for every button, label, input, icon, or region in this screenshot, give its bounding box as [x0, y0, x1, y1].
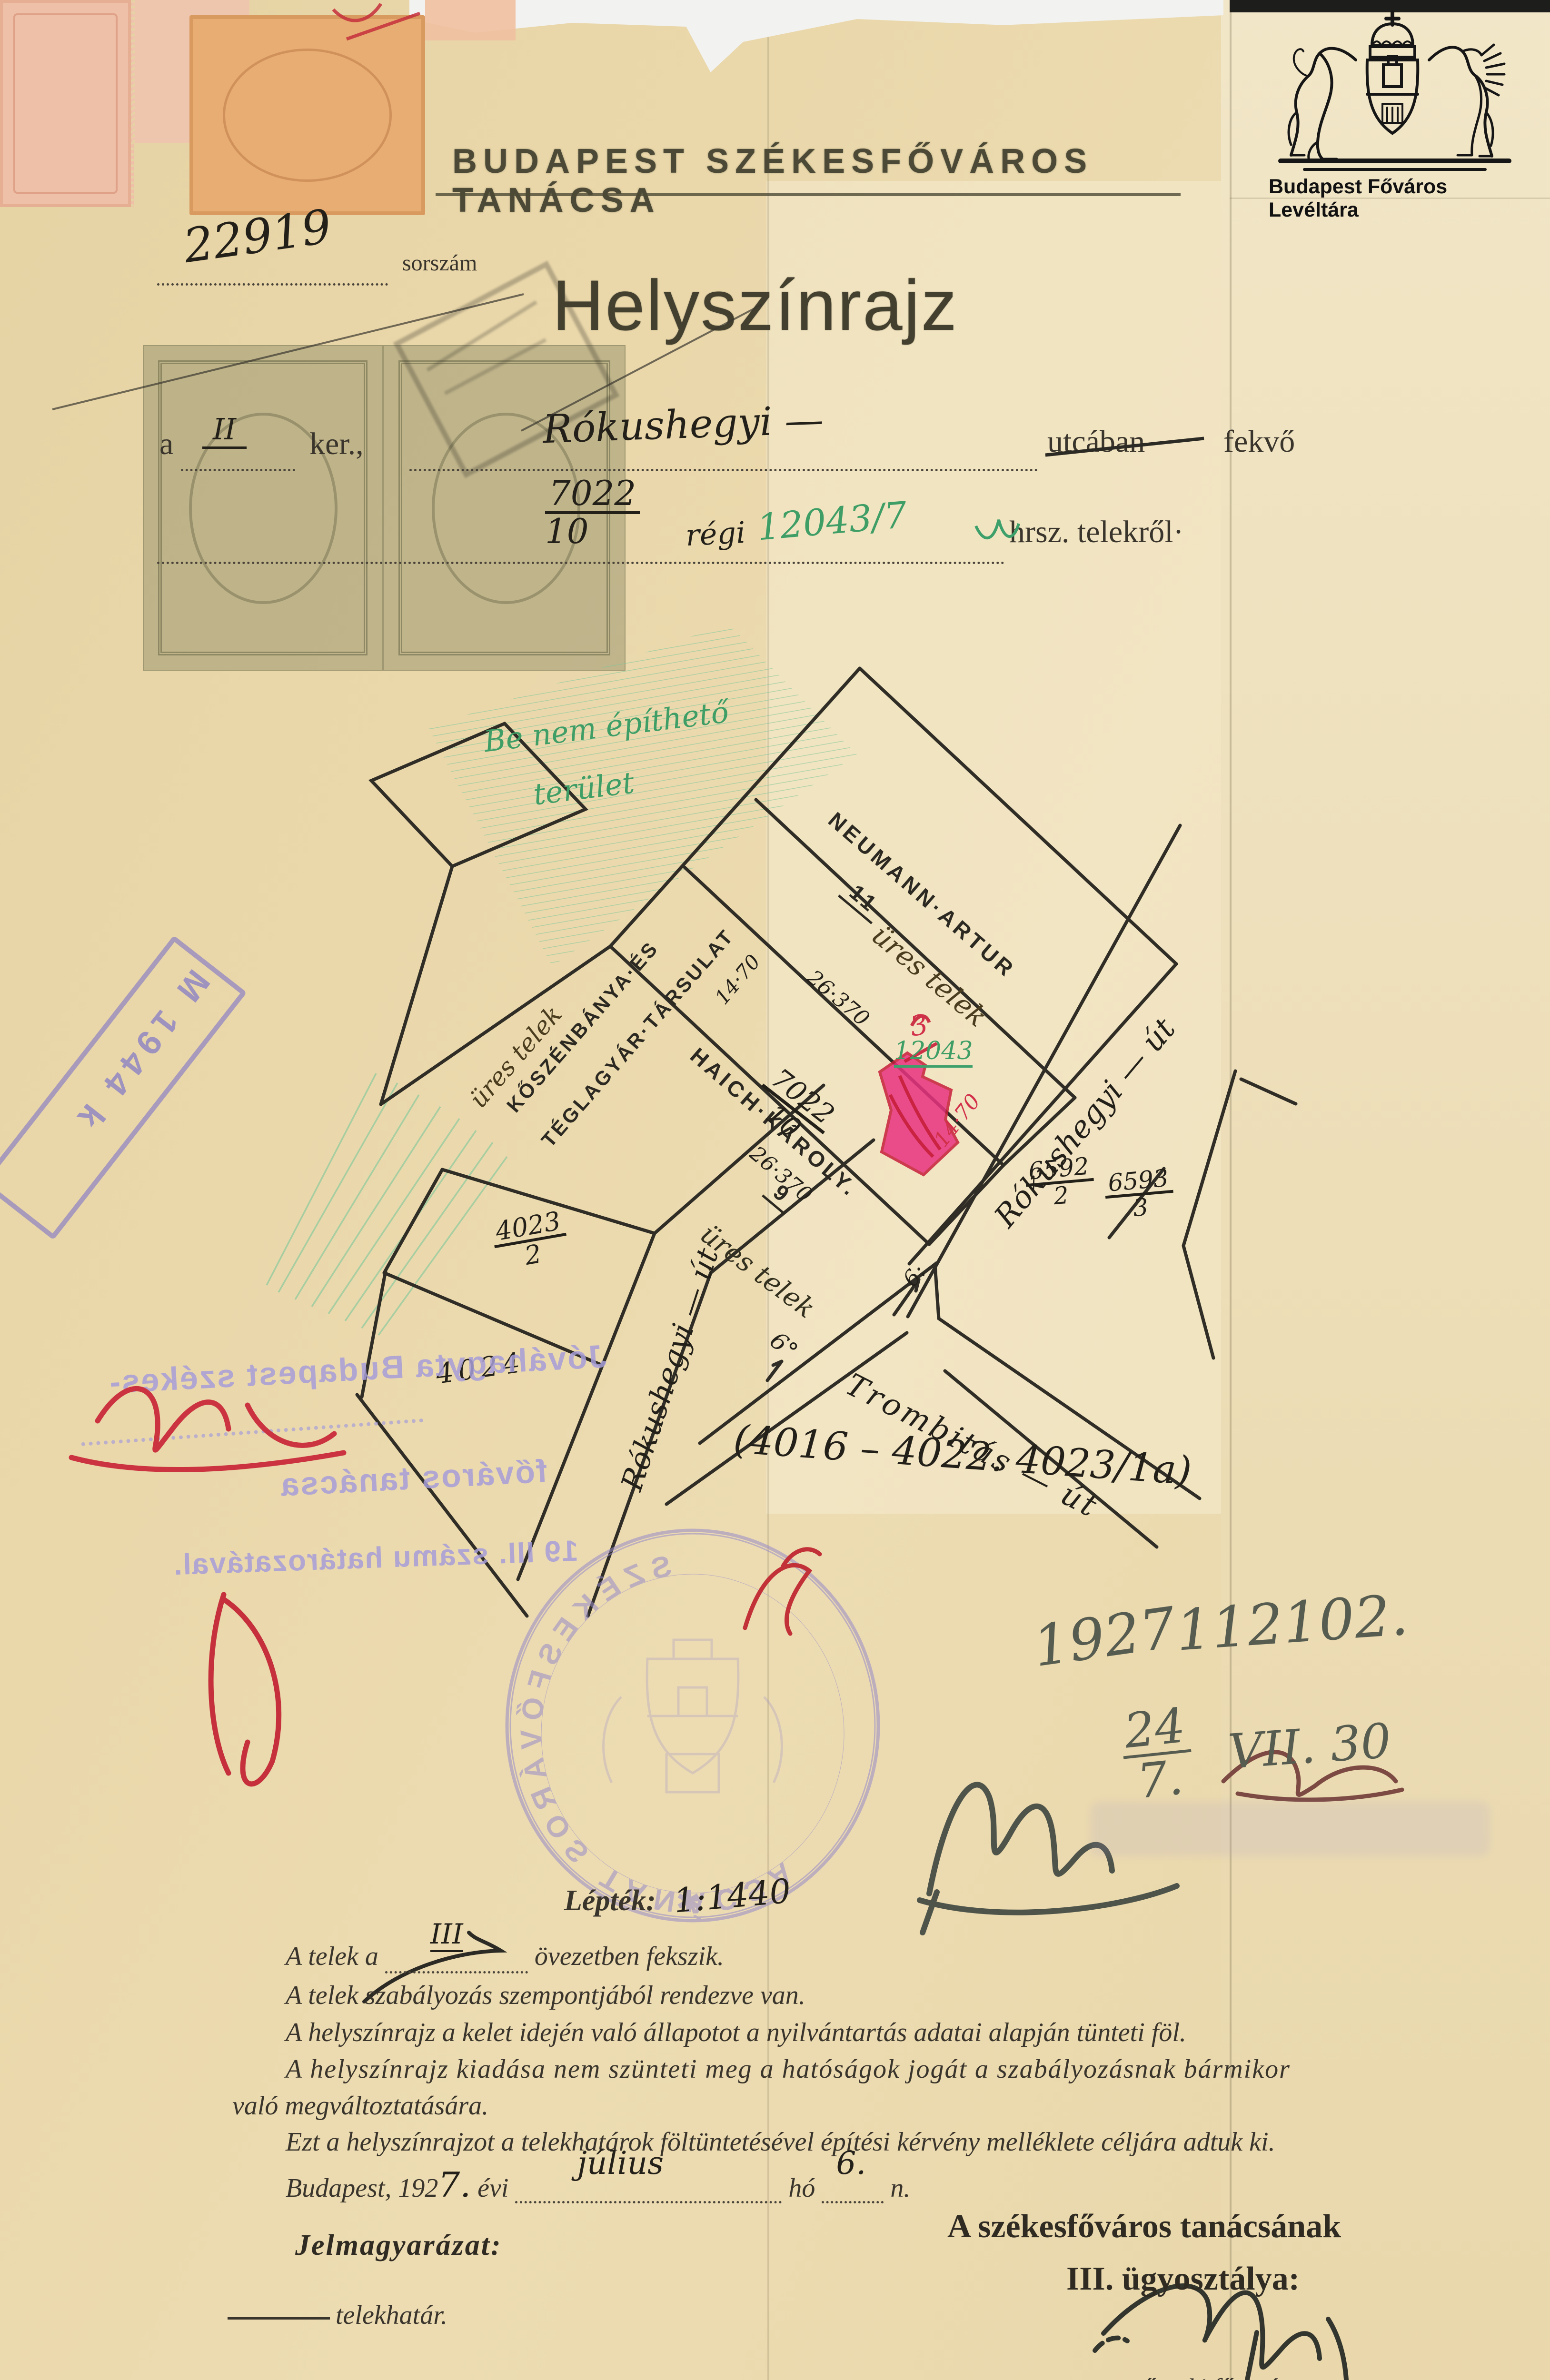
- ink-signature: [1095, 2286, 1347, 2380]
- zone-blank: III: [385, 1943, 528, 1973]
- ghost-purple-band: [1090, 1802, 1490, 1856]
- month-blank: július: [515, 2172, 782, 2203]
- scanned-document: Budapest Főváros Levéltára BUDAPEST SZÉK…: [0, 0, 1550, 2380]
- legend-item: telekhatár.: [336, 2300, 447, 2330]
- legend-title: Jelmagyarázat:: [295, 2229, 502, 2262]
- zone-value: III: [430, 1918, 463, 1952]
- paragraph-2: A telek szabályozás szempontjából rendez…: [286, 1980, 805, 2011]
- red-mirrored-script: [71, 1388, 344, 1469]
- red-flourish: [211, 1595, 279, 1784]
- paragraph-5: Ezt a helyszínrajzot a telekhatárok fölt…: [286, 2127, 1275, 2157]
- date-num: 24: [1118, 1701, 1192, 1759]
- paragraph-zone: A telek a III övezetben fekszik.: [286, 1941, 724, 1973]
- date-day: 6.: [836, 2145, 866, 2182]
- p1-a: A telek a: [286, 1942, 378, 1971]
- issuer-line2: III. ügyosztálya:: [1066, 2260, 1300, 2298]
- date-budapest: Budapest, 192: [286, 2173, 438, 2203]
- date-ho: hó: [788, 2173, 815, 2203]
- date-evi: évi: [477, 2173, 508, 2203]
- red-squiggle-on-stamp: [745, 1549, 820, 1634]
- legend-line: [228, 2317, 330, 2320]
- scale-label: Lépték:: [564, 1884, 656, 1918]
- paragraph-3: A helyszínrajz a kelet idején való állap…: [286, 2017, 1186, 2048]
- date-line: Budapest, 1927. évi július hó 6. n.: [286, 2165, 910, 2205]
- date-n: n.: [890, 2173, 910, 2203]
- signer-title: műszaki főtanácsos: [1123, 2373, 1323, 2380]
- day-blank: 6.: [822, 2172, 884, 2203]
- date-fraction: 247.: [1118, 1701, 1197, 1811]
- date-den: 7.: [1123, 1752, 1196, 1807]
- p1-b: övezetben fekszik.: [535, 1942, 724, 1971]
- date-rest: VII. 30: [1226, 1713, 1392, 1780]
- date-month: július: [577, 2145, 664, 2182]
- issuer-line1: A székesfőváros tanácsának: [947, 2208, 1341, 2246]
- date-year7: 7.: [438, 2165, 471, 2205]
- paragraph-4b: való megváltoztatására.: [232, 2091, 488, 2121]
- paragraph-4a: A helyszínrajz kiadása nem szünteti meg …: [286, 2054, 1291, 2084]
